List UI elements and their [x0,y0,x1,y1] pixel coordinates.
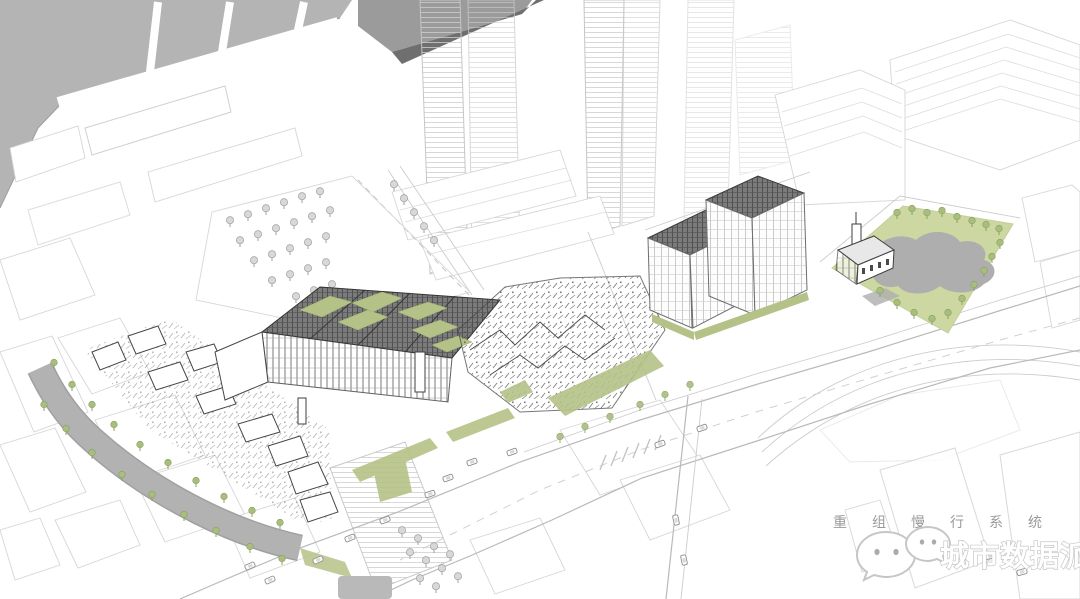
tower [684,0,734,220]
bubble-eye [920,539,924,544]
bubble-eye [932,539,936,544]
overlay-labels: 重组慢行系统 城市数据派 [833,514,1080,580]
watermark-text: 城市数据派 [940,539,1080,573]
bubble-eye [893,549,898,555]
axonometric-rendering-canvas: 重组慢行系统 城市数据派 [0,0,1080,599]
annotation-label: 重组慢行系统 [833,514,1067,530]
chimney-tower [298,398,306,424]
tower [622,0,660,226]
bubble-eye [874,549,879,555]
scene-svg: 重组慢行系统 城市数据派 [0,0,1080,599]
chimney-tower [415,352,425,392]
grey-plaza [338,576,392,599]
mansard-facade [706,200,755,315]
